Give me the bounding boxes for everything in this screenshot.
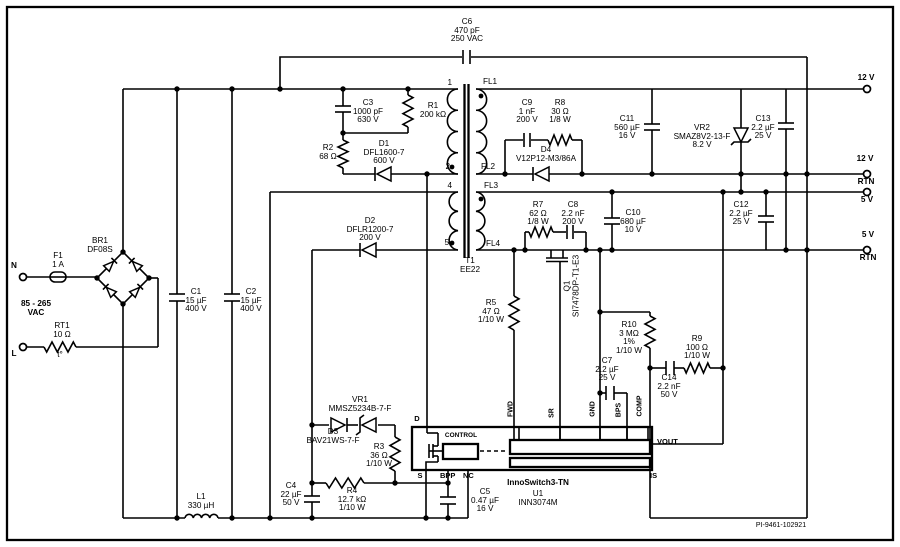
label-rt1-t: t° (57, 351, 63, 360)
label-c1: C1 15 µF 400 V (185, 288, 206, 314)
label-pin2: 2 (445, 163, 450, 172)
label-pin5: 5 (444, 239, 449, 248)
label-r4: R4 12.7 kΩ 1/10 W (338, 487, 366, 513)
label-r8: R8 30 Ω 1/8 W (549, 99, 570, 125)
label-c11: C11 560 µF 16 V (614, 115, 640, 141)
label-c10: C10 680 µF 10 V (620, 209, 646, 235)
wires (26, 57, 863, 518)
label-u1-ref: U1 INN3074M (518, 490, 557, 507)
label-r1: R1 200 kΩ (420, 102, 446, 119)
label-c6: C6 470 pF 250 VAC (451, 18, 483, 44)
label-control: CONTROL (445, 432, 477, 441)
label-vr2: VR2 SMAZ8V2-13-F 8.2 V (674, 124, 731, 150)
label-pin-bpp: BPP (440, 472, 455, 481)
label-l: L (11, 350, 16, 359)
label-l1: L1 330 µH (188, 493, 215, 510)
label-out-12v-rtn-b: RTN (858, 178, 875, 187)
label-r10: R10 3 MΩ 1% 1/10 W (616, 321, 642, 355)
label-pin-d: D (414, 415, 419, 424)
label-f1: F1 1 A (52, 252, 64, 269)
label-pin4: 4 (447, 182, 452, 191)
label-pin-vout: VOUT (657, 438, 678, 447)
label-r7: R7 62 Ω 1/8 W (527, 201, 548, 227)
label-pin-is: IS (650, 472, 657, 481)
label-pin-nc: NC (463, 472, 474, 481)
label-c13: C13 2.2 µF 25 V (751, 115, 774, 141)
label-r5: R5 47 Ω 1/10 W (478, 299, 504, 325)
label-d2: D2 DFLR1200-7 200 V (347, 217, 394, 243)
label-fl4: FL4 (486, 240, 500, 249)
label-out-5v-rtn-b: RTN (860, 254, 877, 263)
label-fl2: FL2 (481, 163, 495, 172)
label-c14: C14 2.2 nF 50 V (657, 374, 680, 400)
label-c5: C5 0.47 µF 16 V (471, 488, 499, 514)
label-n: N (11, 262, 17, 271)
label-c4: C4 22 µF 50 V (280, 482, 301, 508)
label-rt1: RT1 10 Ω (53, 322, 71, 339)
label-pin-s: S (417, 472, 422, 481)
label-out-5v-rtn-a: 5 V (862, 231, 874, 240)
label-r3: R3 36 Ω 1/10 W (366, 443, 392, 469)
label-d3: D3 BAV21WS-7-F (306, 428, 359, 445)
schematic-canvas: C6 470 pF 250 VACC3 1000 pF 630 VR1 200 … (0, 0, 900, 547)
label-c2: C2 15 µF 400 V (240, 288, 261, 314)
label-c12: C12 2.2 µF 25 V (729, 201, 752, 227)
label-d1: D1 DFL1600-7 600 V (364, 140, 405, 166)
label-fl1: FL1 (483, 78, 497, 87)
label-br1: BR1 DF08S (87, 237, 112, 254)
label-t1: T1 EE22 (460, 257, 480, 274)
label-r2: R2 68 Ω (319, 144, 337, 161)
label-d4: D4 V12P12-M3/86A (516, 146, 576, 163)
label-u1-name: InnoSwitch3-TN (507, 479, 569, 488)
label-out-12v: 12 V (858, 74, 875, 83)
label-fl3: FL3 (484, 182, 498, 191)
capacitor-symbols (169, 50, 794, 504)
inductor-l1-symbol (185, 514, 218, 518)
label-c3: C3 1000 pF 630 V (353, 99, 383, 125)
label-c8: C8 2.2 nF 200 V (561, 201, 584, 227)
label-vr1: VR1 MMSZ5234B-7-F (329, 396, 392, 413)
label-vac: 85 - 265 VAC (21, 300, 51, 317)
label-c9: C9 1 nF 200 V (516, 99, 537, 125)
label-pin-fwd: FWD (508, 401, 517, 417)
label-pin-sr: SR (549, 408, 558, 418)
label-r9: R9 100 Ω 1/10 W (684, 335, 710, 361)
bridge-rectifier-symbol (97, 252, 149, 304)
label-q1: Q1 SI7478DP-T1-E3 (563, 255, 580, 317)
label-out-5v: 5 V (861, 196, 873, 205)
label-docnum: PI-9461-102921 (756, 522, 806, 531)
label-pin-comp: COMP (637, 396, 646, 417)
label-pin-gnd: GND (590, 401, 599, 417)
label-c7: C7 2.2 µF 25 V (595, 357, 618, 383)
label-pin-bps: BPS (616, 403, 625, 417)
fuse-f1-symbol (50, 272, 66, 282)
label-out-12v-rtn-a: 12 V (857, 155, 874, 164)
label-pin1: 1 (447, 79, 452, 88)
